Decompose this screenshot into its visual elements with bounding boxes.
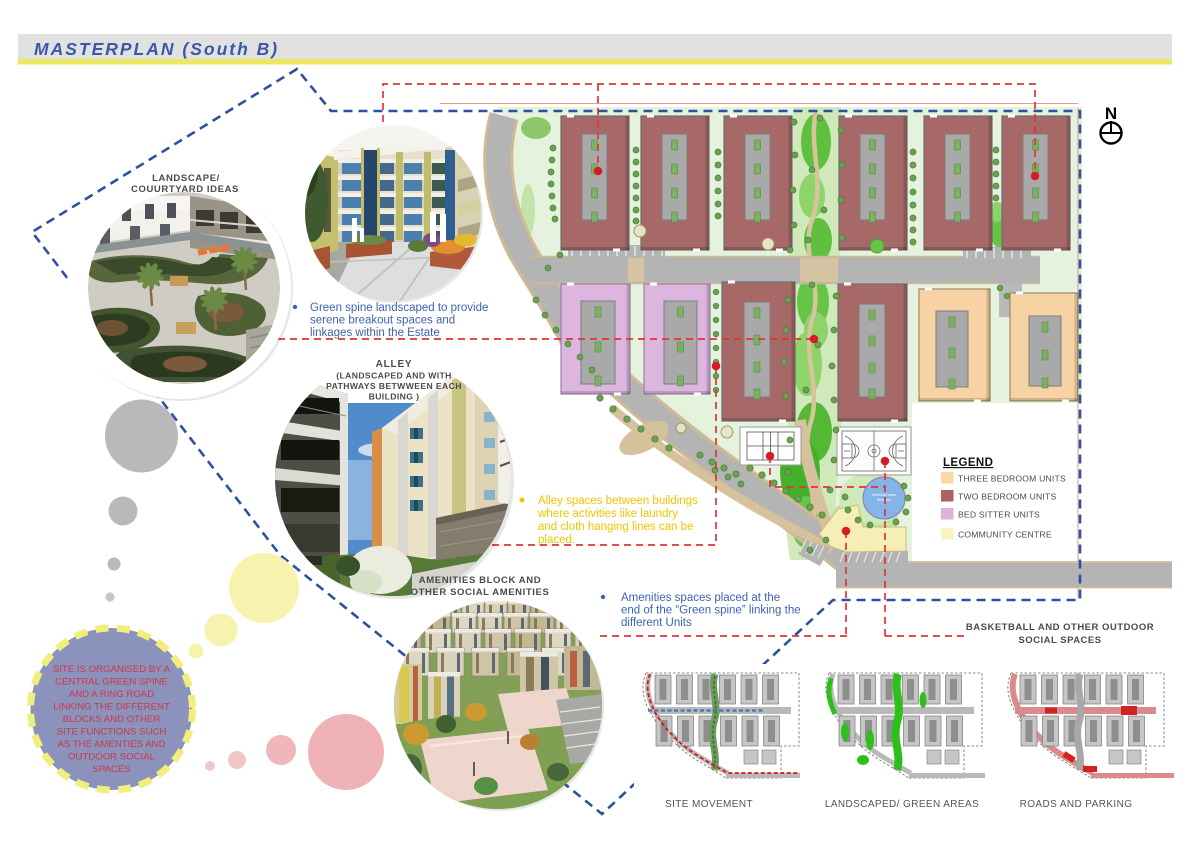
svg-text:different Units: different Units	[621, 617, 692, 629]
svg-text:placed.: placed.	[538, 534, 575, 546]
svg-text:Green spine landscaped to prov: Green spine landscaped to provide	[310, 302, 488, 314]
svg-text:N: N	[1105, 104, 1117, 123]
svg-text:LANDSCAPED/ GREEN AREAS: LANDSCAPED/ GREEN AREAS	[825, 799, 979, 810]
svg-text:TWO BEDROOM UNITS: TWO BEDROOM UNITS	[958, 492, 1056, 502]
svg-text:OTHER SOCIAL AMENITIES: OTHER SOCIAL AMENITIES	[411, 587, 550, 598]
svg-text:LINKING THE DIFFERENT: LINKING THE DIFFERENT	[53, 702, 170, 713]
svg-text:BASKETBALL AND OTHER OUTDOOR: BASKETBALL AND OTHER OUTDOOR	[966, 622, 1154, 633]
svg-text:OUTDOOR SOCIAL: OUTDOOR SOCIAL	[68, 752, 156, 763]
svg-text:ROADS AND PARKING: ROADS AND PARKING	[1020, 799, 1133, 810]
svg-text:COMMUNITY CENTRE: COMMUNITY CENTRE	[958, 530, 1052, 540]
svg-text:AMENITIES BLOCK AND: AMENITIES BLOCK AND	[419, 575, 541, 586]
svg-text:AS THE AMENTIES AND: AS THE AMENTIES AND	[57, 739, 165, 750]
svg-text:linkages within the Estate: linkages within the Estate	[310, 327, 440, 339]
svg-text:BLOCKS AND OTHER: BLOCKS AND OTHER	[63, 714, 161, 725]
svg-text:AND A RING ROAD: AND A RING ROAD	[69, 689, 154, 700]
svg-text:and cloth hanging lines can be: and cloth hanging lines can be	[538, 521, 693, 533]
svg-text:BUILDING ): BUILDING )	[369, 392, 420, 402]
svg-text:Alley spaces between buildings: Alley spaces between buildings	[538, 495, 698, 507]
svg-text:Amenities spaces placed at the: Amenities spaces placed at the	[621, 592, 780, 604]
svg-text:ALLEY: ALLEY	[376, 359, 413, 370]
svg-text:CENTRAL GREEN SPINE: CENTRAL GREEN SPINE	[55, 677, 168, 688]
svg-text:BED SITTER UNITS: BED SITTER UNITS	[958, 510, 1040, 520]
svg-text:SPACES: SPACES	[92, 764, 130, 775]
svg-text:COUURTYARD IDEAS: COUURTYARD IDEAS	[131, 184, 239, 195]
svg-text:where activities like laundry: where activities like laundry	[537, 508, 678, 520]
svg-text:THREE BEDROOM UNITS: THREE BEDROOM UNITS	[958, 474, 1066, 484]
svg-text:SOCIAL SPACES: SOCIAL SPACES	[1018, 635, 1101, 646]
svg-text:Overhead water: Overhead water	[872, 493, 897, 497]
svg-text:LANDSCAPE/: LANDSCAPE/	[152, 173, 220, 184]
svg-text:SITE MOVEMENT: SITE MOVEMENT	[665, 799, 753, 810]
svg-text:MASTERPLAN (South B): MASTERPLAN (South B)	[34, 39, 279, 59]
svg-text:(LANDSCAPED AND WITH: (LANDSCAPED AND WITH	[336, 371, 452, 381]
svg-text:SITE IS ORGANISED BY A: SITE IS ORGANISED BY A	[53, 664, 171, 675]
svg-text:serene breakout spaces and: serene breakout spaces and	[310, 315, 455, 327]
svg-text:LEGEND: LEGEND	[943, 457, 993, 469]
svg-text:SITE FUNCTIONS SUCH: SITE FUNCTIONS SUCH	[57, 727, 167, 738]
svg-text:end of the “Green spine” linki: end of the “Green spine” linking the	[621, 605, 801, 617]
svg-text:PATHWAYS BETWWEEN EACH: PATHWAYS BETWWEEN EACH	[326, 381, 462, 391]
